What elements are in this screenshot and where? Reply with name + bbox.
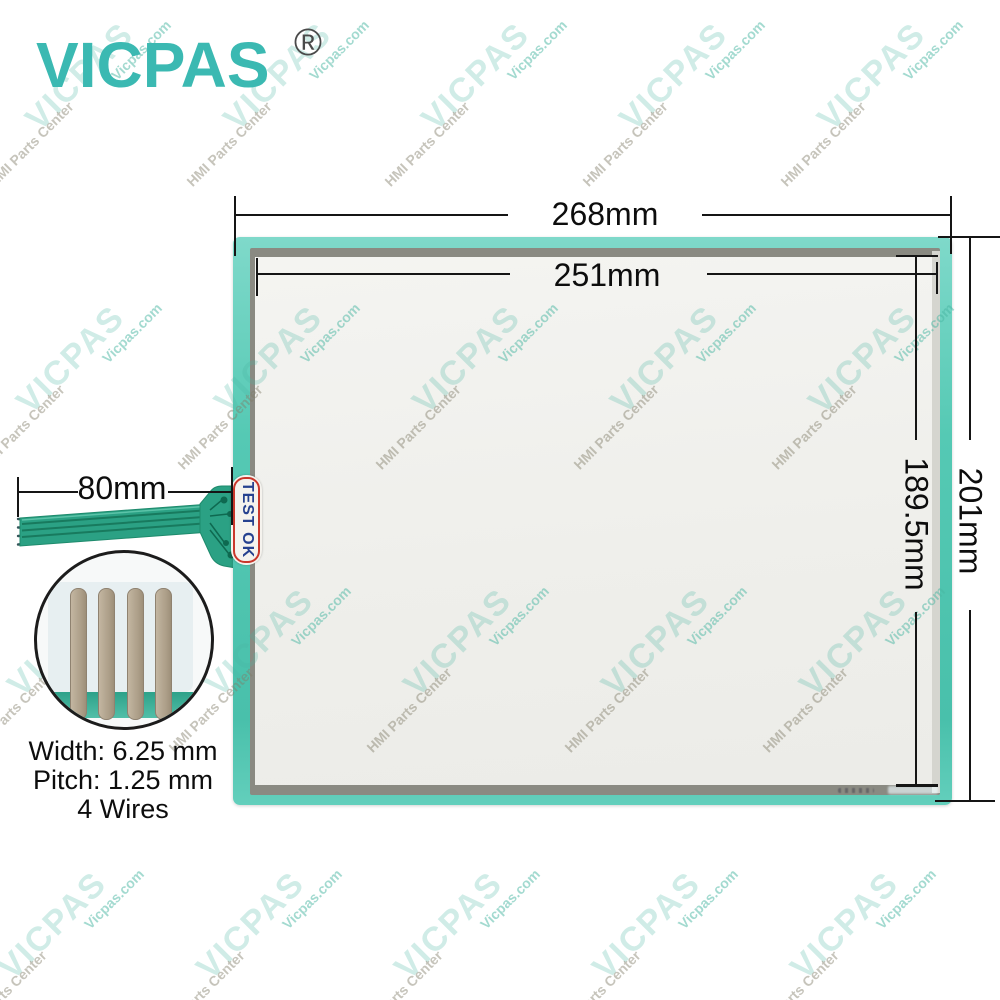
watermark-text: HMI Parts Center (354, 947, 445, 1000)
watermark-text: HMI Parts Center (552, 947, 643, 1000)
watermark-text: VICPAS (189, 864, 313, 988)
wire-detail-inset (34, 550, 214, 730)
wire-bar (155, 588, 172, 720)
watermark-text: Vicpas.com (504, 17, 570, 83)
dim-outer-width-label: 268mm (545, 196, 665, 233)
dim-tail-length-label: 80mm (62, 470, 182, 507)
brand-logo-text: VICPAS (36, 29, 270, 101)
panel-active-area (255, 257, 932, 785)
spec-wires: 4 Wires (8, 795, 238, 824)
watermark-text: VICPAS (387, 864, 511, 988)
watermark-text: HMI Parts Center (0, 381, 68, 472)
watermark-text: HMI Parts Center (183, 98, 274, 189)
watermark-text: VICPAS (810, 15, 934, 139)
watermark-text: VICPAS (0, 864, 115, 988)
watermark-text: HMI Parts Center (156, 947, 247, 1000)
watermark-text: HMI Parts Center (0, 947, 50, 1000)
watermark-text: Vicpas.com (702, 17, 768, 83)
dim-active-width-label: 251mm (547, 257, 667, 294)
watermark-text: VICPAS (9, 298, 133, 422)
watermark-text: HMI Parts Center (750, 947, 841, 1000)
watermark-text: Vicpas.com (279, 866, 345, 932)
watermark-text: HMI Parts Center (579, 98, 670, 189)
panel-print-marks (838, 788, 874, 793)
watermark-text: HMI Parts Center (381, 98, 472, 189)
spec-width: Width: 6.25 mm (8, 737, 238, 766)
panel-print-marks (888, 786, 938, 794)
wire-bar (127, 588, 144, 720)
watermark-text: VICPAS (414, 15, 538, 139)
watermark-text: VICPAS (585, 864, 709, 988)
watermark-text: Vicpas.com (675, 866, 741, 932)
watermark-text: HMI Parts Center (0, 98, 77, 189)
watermark-text: Vicpas.com (900, 17, 966, 83)
watermark-text: VICPAS (612, 15, 736, 139)
registered-trademark-icon: ® (294, 22, 322, 65)
product-photo: VICPAS ® (0, 0, 1000, 1000)
tail-specs: Width: 6.25 mm Pitch: 1.25 mm 4 Wires (8, 737, 238, 824)
wire-bar (70, 588, 87, 720)
watermark-text: Vicpas.com (477, 866, 543, 932)
test-ok-text: TEST OK (238, 482, 256, 558)
watermark-text: HMI Parts Center (777, 98, 868, 189)
watermark-text: VICPAS (783, 864, 907, 988)
test-ok-sticker: TEST OK (231, 475, 262, 565)
brand-logo: VICPAS ® (36, 28, 270, 102)
spec-pitch: Pitch: 1.25 mm (8, 766, 238, 795)
watermark-text: Vicpas.com (873, 866, 939, 932)
watermark-text: Vicpas.com (81, 866, 147, 932)
touch-panel (233, 237, 952, 805)
watermark-text: Vicpas.com (99, 300, 165, 366)
wire-bar (98, 588, 115, 720)
